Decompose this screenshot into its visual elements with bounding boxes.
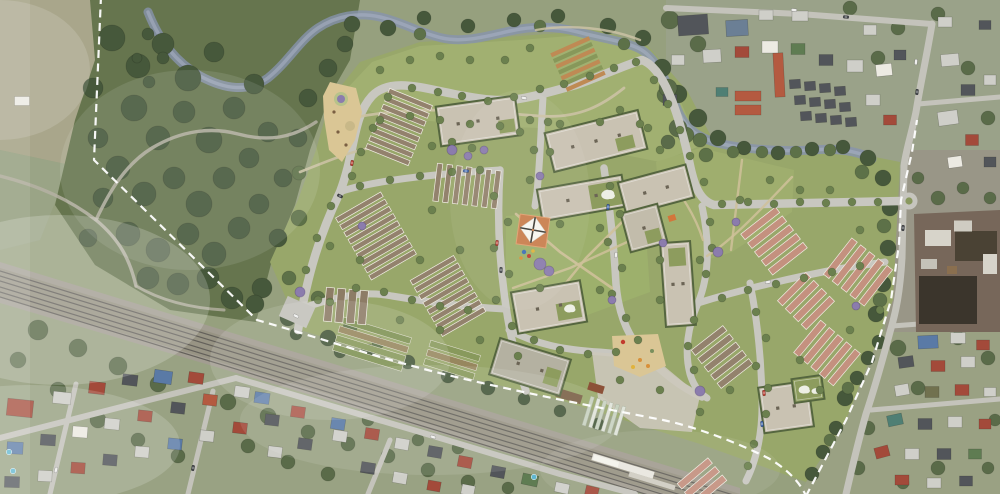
map-canvas [0, 0, 1000, 494]
aerial-masterplan-view [0, 0, 1000, 494]
